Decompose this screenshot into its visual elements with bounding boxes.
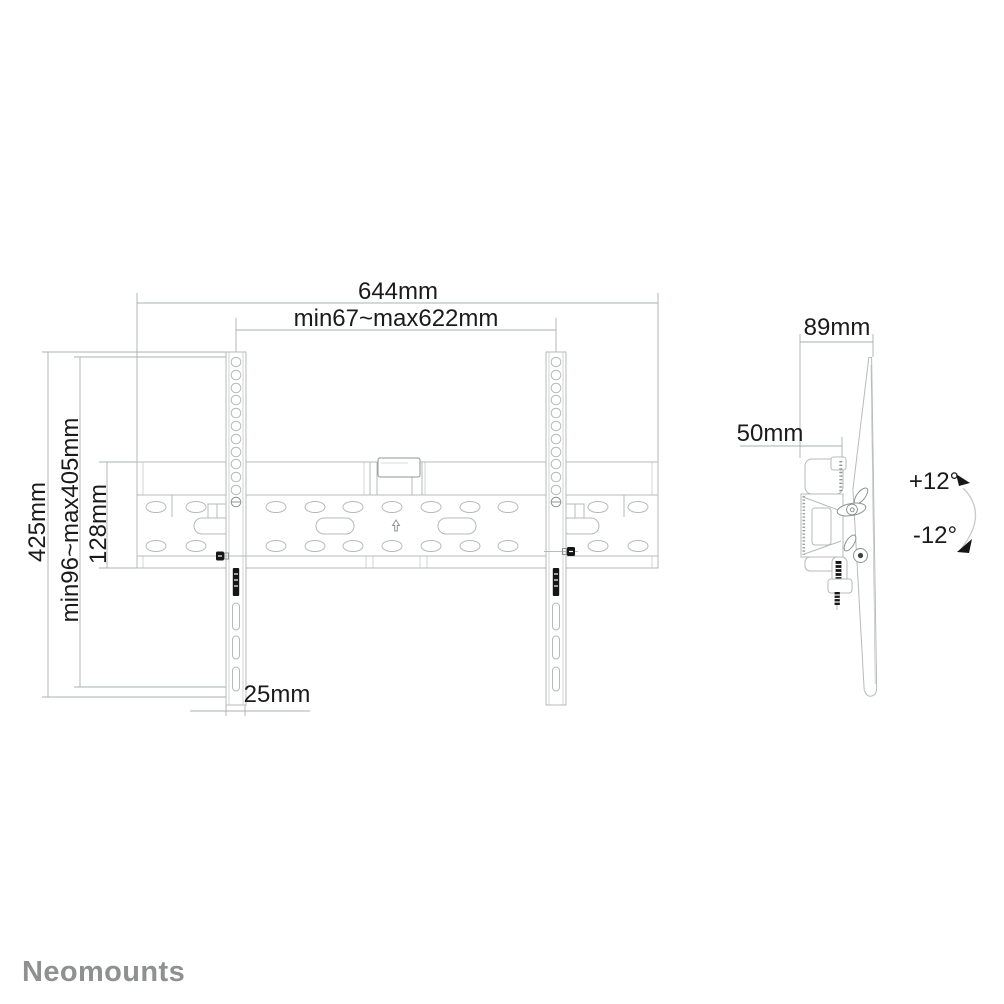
dim-total-height-label: 425mm [24, 482, 51, 562]
dim-depth-label: 89mm [804, 314, 871, 341]
tilt-up-label: +12° [909, 468, 959, 495]
vesa-rail-left [226, 352, 246, 705]
wall-mount-drawing: 644mm min67~max622mm 425mm min96~max405m… [0, 0, 1004, 1004]
vesa-rail-right [546, 352, 566, 705]
tilt-arc [961, 488, 976, 549]
dim-wall-offset-label: 50mm [737, 420, 804, 447]
dim-stud-range-label: min67~max622mm [294, 305, 499, 332]
technical-drawing-page: 644mm min67~max622mm 425mm min96~max405m… [0, 0, 1004, 1004]
dim-plate-height-label: 128mm [85, 484, 112, 564]
dim-total-width-label: 644mm [358, 278, 438, 305]
tilt-down-label: -12° [913, 522, 957, 549]
wall-plate [137, 458, 658, 568]
dim-rail-width-label: 25mm [244, 681, 311, 708]
dim-height-range-label: min96~max405mm [57, 418, 84, 623]
side-view: +12° -12° 89mm 50mm [737, 314, 976, 696]
neomounts-logo: Neomounts [22, 956, 185, 989]
tilt-annotation: +12° -12° [909, 468, 976, 553]
tv-profile [853, 358, 877, 697]
front-view: 644mm min67~max622mm 425mm min96~max405m… [24, 278, 658, 716]
tilt-down-arrow-icon [957, 539, 972, 553]
